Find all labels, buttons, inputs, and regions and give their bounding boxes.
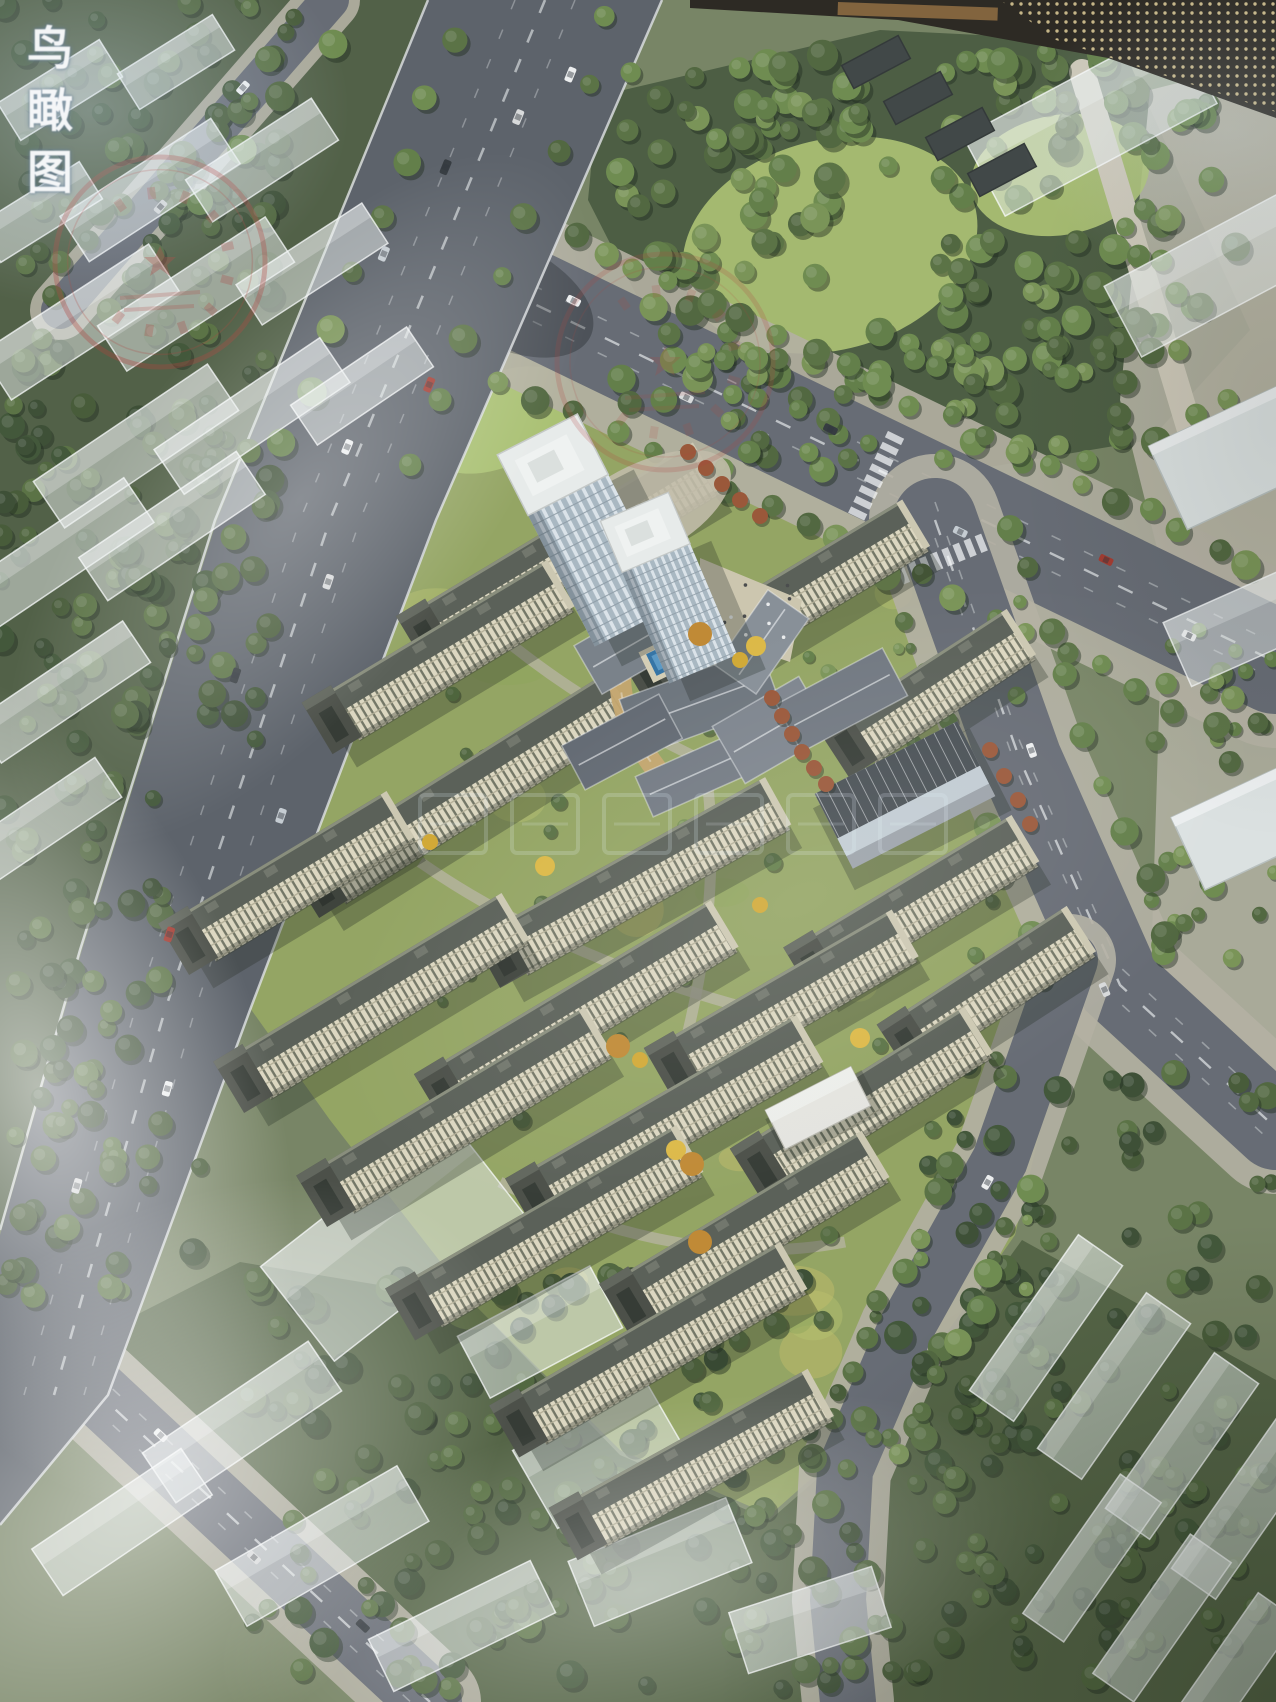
photo-of-aerial-masterplan-rendering: 鸟瞰图 xyxy=(0,0,1276,1702)
aerial-rendering xyxy=(0,0,1276,1702)
photo-artifacts-layer xyxy=(0,0,1276,1702)
vertical-caption: 鸟瞰图 xyxy=(14,24,80,210)
